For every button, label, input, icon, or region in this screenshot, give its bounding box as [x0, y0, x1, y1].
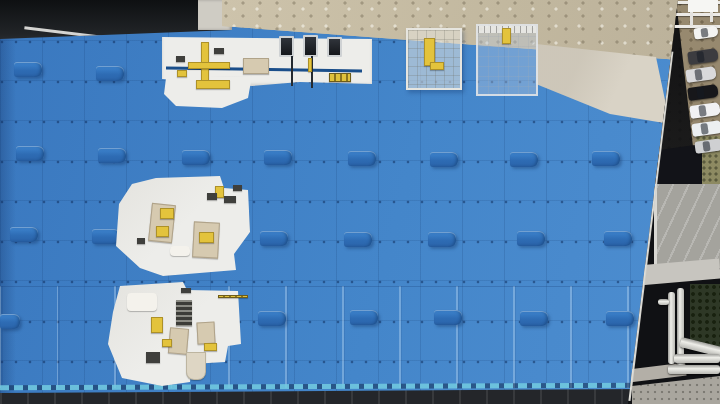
yellow-equipment	[199, 232, 214, 243]
yellow-equipment	[204, 343, 217, 351]
dark-equipment	[181, 288, 191, 293]
white-equipment	[170, 246, 190, 256]
metal-pipe	[658, 299, 669, 305]
yellow-equipment	[160, 208, 174, 219]
panel-equipment	[243, 58, 269, 74]
yellow-equipment	[502, 28, 511, 44]
white-equipment	[127, 293, 157, 311]
yellow-equipment	[156, 226, 169, 237]
roof-equipment-layer	[0, 0, 720, 404]
metal-pipe	[668, 365, 720, 374]
metal-pipe	[668, 292, 675, 364]
yellow-equipment	[188, 62, 230, 69]
aerial-photo-blue-industrial-roof	[0, 0, 720, 404]
stripe-equipment	[218, 295, 248, 298]
dark-equipment	[224, 196, 236, 203]
yellow-equipment	[196, 80, 230, 89]
dark-equipment	[214, 48, 224, 54]
yellow-equipment	[430, 62, 444, 70]
dark-equipment	[146, 352, 160, 363]
metal-pipe	[674, 354, 720, 363]
dark-equipment	[207, 193, 217, 200]
dark-equipment	[137, 238, 145, 244]
yellow-equipment	[162, 339, 172, 347]
panel-equipment	[196, 322, 215, 345]
dark-equipment	[176, 56, 185, 62]
dark-equipment	[233, 185, 242, 191]
stack-equipment	[176, 300, 192, 326]
yellow-equipment	[177, 70, 187, 77]
tail-equipment	[186, 352, 206, 380]
yellow-equipment	[151, 317, 163, 333]
